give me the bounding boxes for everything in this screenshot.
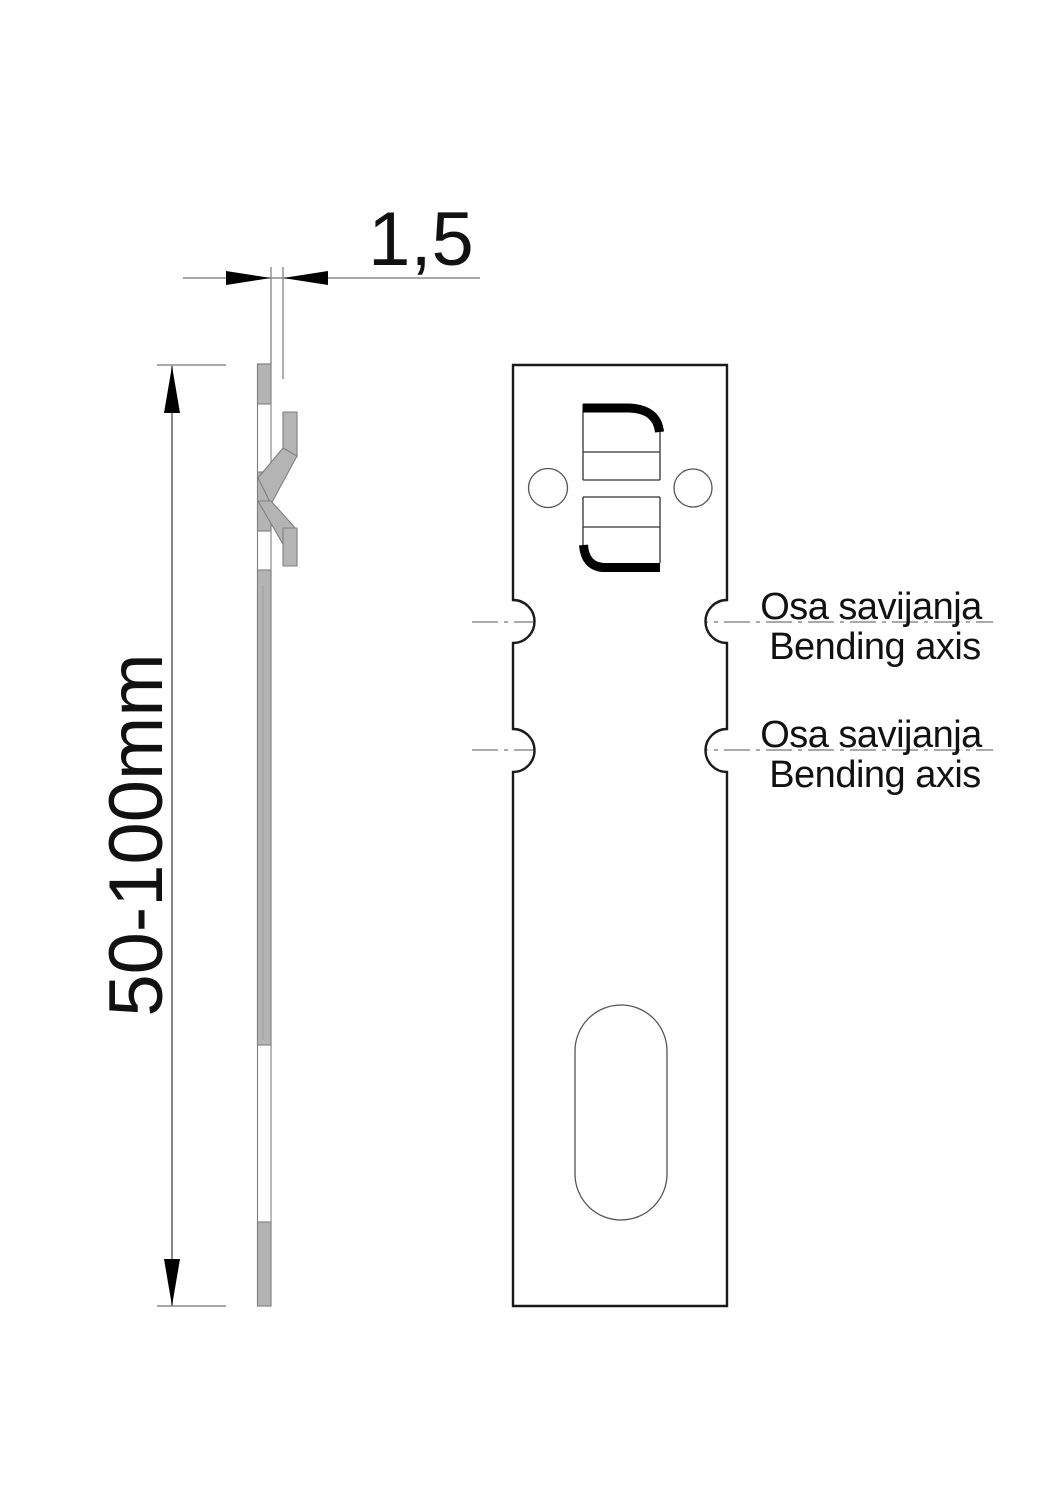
- bending-axis-2-label-local: Osa savijanja: [760, 714, 983, 756]
- bent-tab-lower-bar: [283, 528, 297, 566]
- thickness-dimension: 1,5: [183, 197, 480, 379]
- front-view: [513, 365, 727, 1306]
- round-hole-left: [529, 469, 568, 508]
- height-arrow-top: [164, 366, 180, 413]
- side-strip-bottom-segment: [258, 1222, 272, 1306]
- bending-axis-2-label-english: Bending axis: [769, 754, 981, 796]
- drawing-canvas: 1,5 50-100mm: [0, 0, 1061, 1500]
- thickness-dimension-label: 1,5: [368, 197, 474, 282]
- bending-axis-1-label-english: Bending axis: [769, 626, 981, 668]
- height-dimension-label: 50-100mm: [94, 653, 179, 1016]
- round-hole-right: [674, 469, 712, 507]
- slotted-hole: [575, 1005, 667, 1220]
- thickness-arrow-right: [283, 271, 328, 285]
- height-dimension: 50-100mm: [94, 365, 226, 1306]
- technical-drawing: 1,5 50-100mm: [0, 0, 1061, 1500]
- bending-axis-1-label-local: Osa savijanja: [760, 586, 983, 628]
- bending-axis-annotation-1: Osa savijanja Bending axis: [760, 586, 983, 668]
- side-strip-top-segment: [258, 364, 272, 404]
- side-view: [258, 364, 298, 1306]
- thickness-arrow-left: [226, 271, 271, 285]
- side-strip-long-segment: [258, 570, 272, 1045]
- height-arrow-bottom: [164, 1259, 180, 1306]
- bending-axis-annotation-2: Osa savijanja Bending axis: [760, 714, 983, 796]
